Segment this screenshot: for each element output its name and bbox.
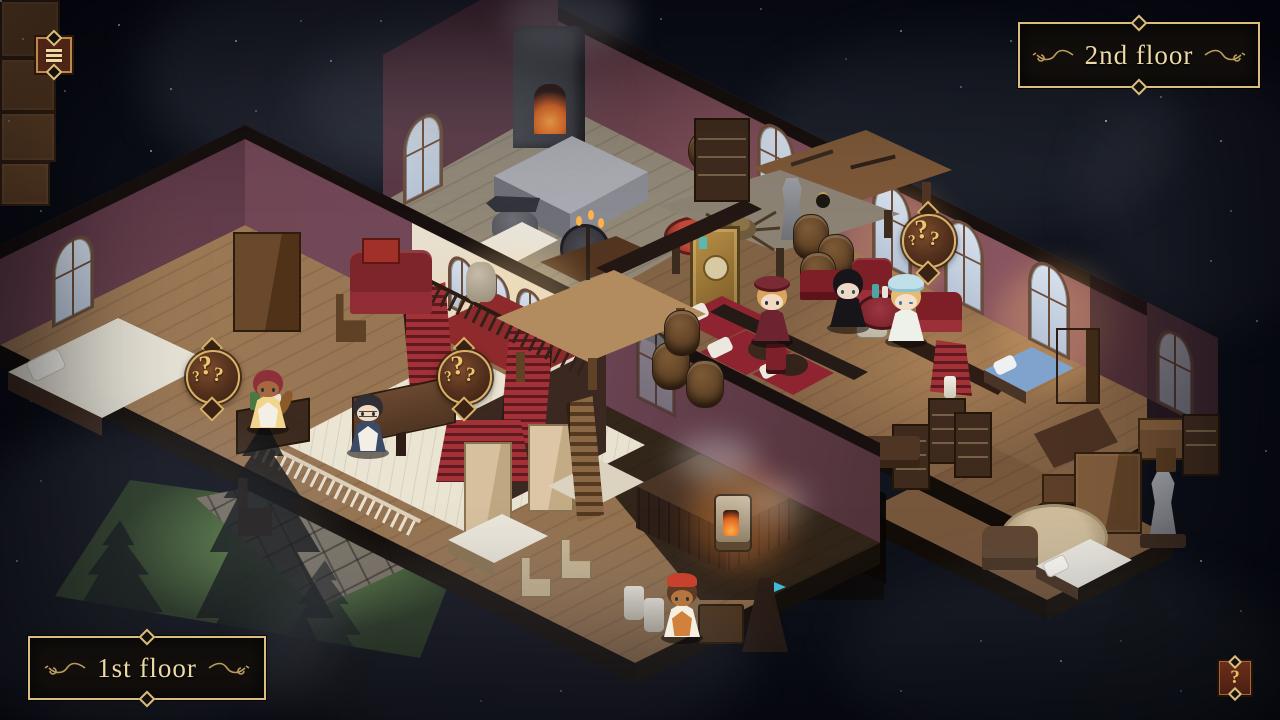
table-leg bbox=[588, 358, 597, 390]
help-button[interactable]: ? bbox=[1219, 661, 1251, 695]
floor-label-2nd[interactable]: 2nd floor bbox=[1018, 22, 1260, 88]
question-marker-bedroom[interactable]: ??? bbox=[900, 206, 956, 278]
character-hair bbox=[253, 370, 283, 397]
table-leg bbox=[516, 352, 525, 382]
armor-pedestal bbox=[1140, 534, 1186, 548]
armor-statue bbox=[1146, 472, 1180, 542]
character-hair bbox=[833, 269, 863, 299]
lantern-fire bbox=[723, 510, 739, 536]
fog-cloud bbox=[840, 560, 1280, 720]
flourish-icon bbox=[1031, 47, 1075, 63]
cream-wardrobe bbox=[528, 424, 574, 512]
bookshelf bbox=[694, 118, 750, 202]
character-cook[interactable] bbox=[658, 577, 706, 641]
table-leg bbox=[884, 210, 892, 238]
glasses bbox=[359, 411, 377, 417]
character-dress bbox=[754, 307, 790, 341]
steam-puff bbox=[676, 436, 756, 482]
sack bbox=[466, 262, 496, 302]
red-hat bbox=[754, 276, 790, 292]
chair bbox=[1156, 448, 1176, 472]
shelf-line bbox=[698, 138, 746, 140]
flourish-icon bbox=[1203, 47, 1247, 63]
inkwell bbox=[816, 194, 830, 208]
candle-flame bbox=[576, 216, 582, 226]
white-lamp bbox=[944, 376, 956, 398]
steam-puff bbox=[742, 482, 808, 522]
candle-flame bbox=[598, 218, 604, 228]
wardrobe bbox=[1056, 328, 1100, 404]
red-box bbox=[362, 238, 400, 264]
character-hair bbox=[353, 394, 383, 421]
bottle bbox=[872, 284, 879, 298]
shelf-line bbox=[698, 174, 746, 176]
flourish-icon bbox=[43, 660, 87, 676]
question-marker-lounge[interactable]: ??? bbox=[184, 342, 240, 414]
wardrobe bbox=[233, 232, 301, 332]
character-violinist[interactable] bbox=[244, 368, 292, 432]
character-dress bbox=[888, 307, 924, 341]
shelf-line bbox=[698, 156, 746, 158]
anvil bbox=[486, 196, 540, 212]
wall-shelf bbox=[1182, 414, 1220, 476]
game-stage: ??? ??? ??? 2nd floor 1st floor bbox=[0, 0, 1280, 720]
hamburger-icon bbox=[46, 47, 62, 64]
floor-label-text: 2nd floor bbox=[1085, 40, 1194, 71]
table-leg bbox=[672, 246, 680, 274]
question-marker-staircase[interactable]: ??? bbox=[436, 342, 492, 414]
floor-label-text: 1st floor bbox=[97, 653, 197, 684]
vault-gem bbox=[699, 237, 707, 249]
crate bbox=[0, 162, 50, 206]
marker-question-text: ??? bbox=[902, 214, 952, 264]
crate bbox=[0, 112, 56, 162]
bookshelf bbox=[954, 412, 992, 478]
marker-question-text: ??? bbox=[438, 350, 488, 400]
character-lady-black-dress[interactable] bbox=[824, 267, 872, 331]
red-headscarf bbox=[667, 573, 697, 587]
barrel bbox=[686, 360, 724, 408]
candelabra-pole bbox=[586, 226, 590, 280]
starfield bbox=[0, 0, 2, 2]
character-lady-blue-bonnet[interactable] bbox=[882, 281, 930, 345]
vault-clock bbox=[703, 255, 729, 281]
floor-label-1st[interactable]: 1st floor bbox=[28, 636, 266, 700]
marker-question-text: ??? bbox=[186, 350, 236, 400]
menu-button[interactable] bbox=[36, 37, 72, 73]
character-lady-red-hat[interactable] bbox=[748, 281, 796, 345]
barrel bbox=[664, 310, 700, 356]
dresser bbox=[1042, 474, 1078, 504]
help-button-label: ? bbox=[1230, 667, 1240, 689]
fog-cloud bbox=[300, 30, 600, 170]
cursor-arrow-icon bbox=[772, 580, 788, 594]
flourish-icon bbox=[207, 660, 251, 676]
character-maid[interactable] bbox=[344, 392, 392, 456]
candle-flame bbox=[588, 210, 594, 220]
